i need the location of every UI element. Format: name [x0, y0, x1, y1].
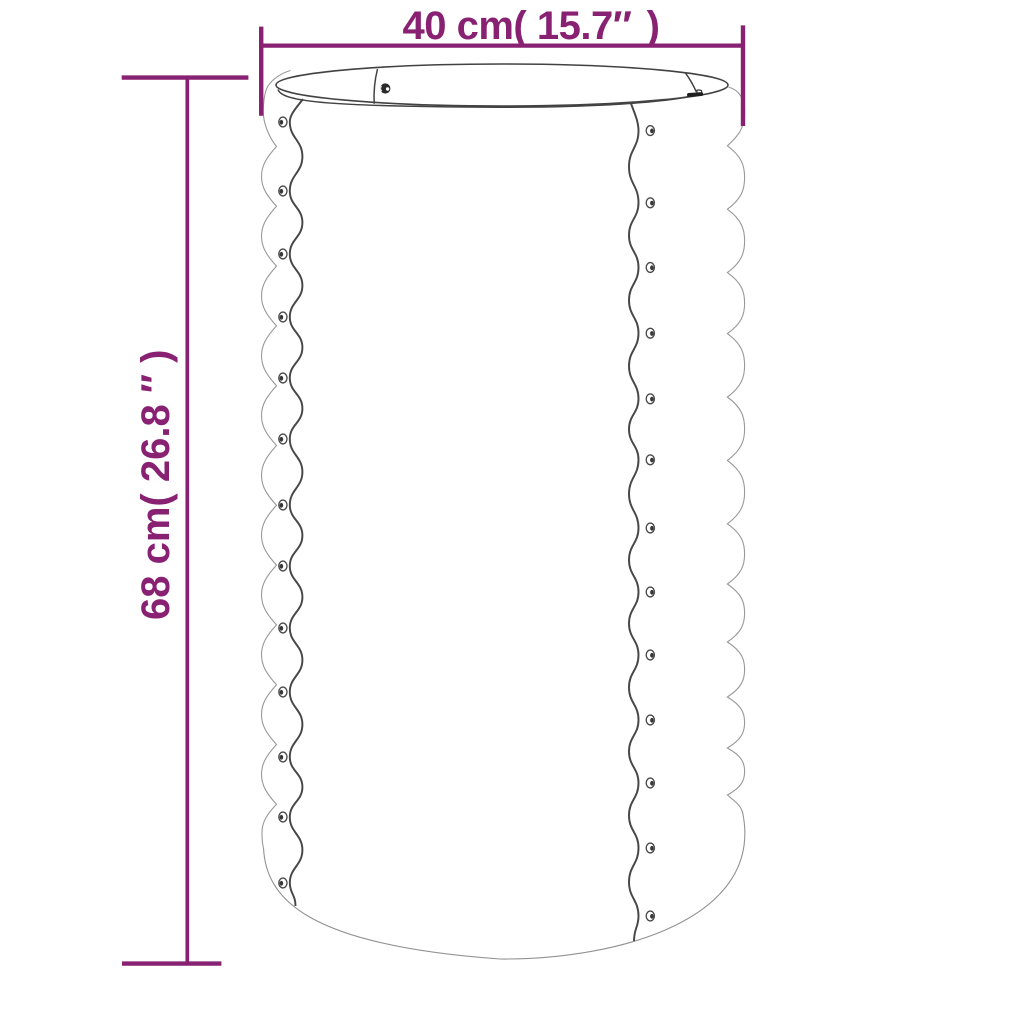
svg-text:40 cm( 15.7″ ): 40 cm( 15.7″ ) — [403, 4, 660, 48]
svg-text:68 cm( 26.8 ″ ): 68 cm( 26.8 ″ ) — [134, 350, 178, 620]
